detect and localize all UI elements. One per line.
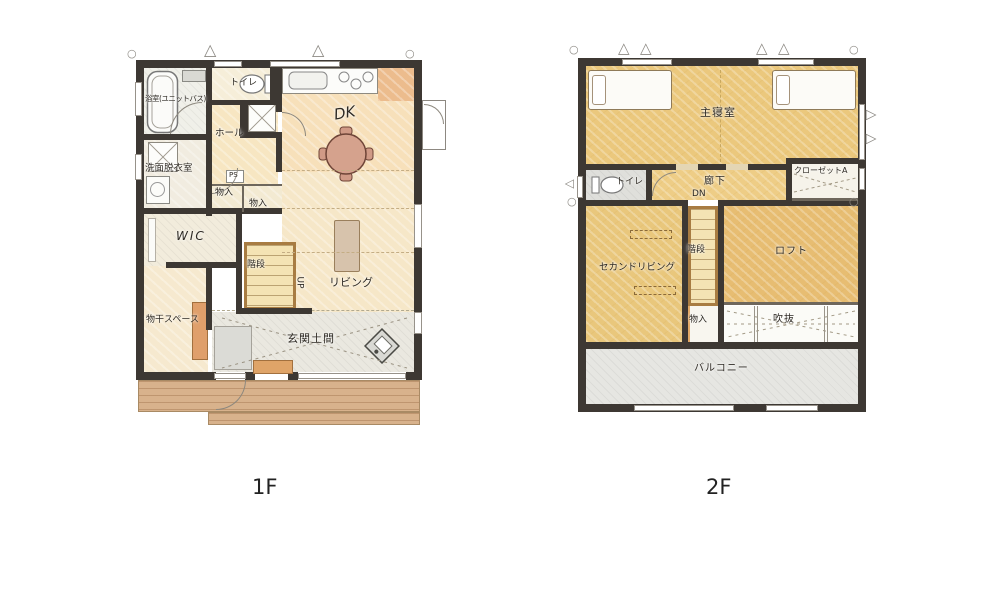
corner-mark-icon: ○ xyxy=(569,44,579,55)
floor-plan-sheet: △ △ ○ ○ 浴室(ユニットバス) トイレ ホール DK 洗面脱衣室 PS 物… xyxy=(0,0,1000,600)
room-label-washroom: 洗面脱衣室 xyxy=(145,164,193,174)
corner-mark-icon: ○ xyxy=(127,48,137,59)
room-label-balcony: バルコニー xyxy=(694,364,749,374)
window-mark-icon: △ xyxy=(864,134,878,145)
furniture-outline xyxy=(634,286,676,295)
wall-segment xyxy=(240,132,282,138)
wall-segment xyxy=(136,372,216,380)
room-label-loft: ロフト xyxy=(775,247,808,257)
bath-counter xyxy=(182,70,206,82)
window-mark-icon: △ xyxy=(204,42,216,58)
pillow-right xyxy=(776,75,790,105)
room-label-hall: ホール xyxy=(215,129,244,139)
stairs-dn-label: DN xyxy=(692,190,706,199)
beam-line xyxy=(282,252,414,253)
room-label-closet-a: クローゼットA xyxy=(794,167,847,175)
washroom-sink-bowl xyxy=(150,182,165,197)
genkan-step xyxy=(253,360,293,374)
window xyxy=(414,204,422,248)
room-label-master-bedroom: 主寝室 xyxy=(700,107,736,118)
wall-segment xyxy=(236,308,312,314)
room-label-laundry: 物干スペース xyxy=(146,316,199,325)
window-mark-icon: △ xyxy=(640,41,652,56)
room-label-ps: PS xyxy=(229,172,238,179)
window xyxy=(859,168,865,190)
window xyxy=(270,61,340,67)
window xyxy=(414,312,422,334)
stairs-up-label: UP xyxy=(295,276,304,288)
wall-segment xyxy=(718,206,724,342)
corner-mark-icon: ○ xyxy=(849,196,859,207)
dining-table xyxy=(318,126,374,182)
window xyxy=(622,59,672,65)
void-post xyxy=(824,306,828,342)
wood-deck-lower xyxy=(208,412,420,425)
wall-segment xyxy=(578,58,586,412)
wall-segment xyxy=(586,200,688,206)
kitchen-counter xyxy=(282,68,378,94)
room-label-stairs-1f: 階段 xyxy=(247,261,265,270)
window-mark-icon: △ xyxy=(312,42,324,58)
room-label-toilet: トイレ xyxy=(230,79,257,88)
window xyxy=(214,61,242,67)
pillow-left xyxy=(592,75,606,105)
room-label-corridor: 廊下 xyxy=(704,177,726,187)
window xyxy=(634,405,734,411)
floor-title-1f: 1F xyxy=(252,477,277,498)
void-post xyxy=(754,306,758,342)
corner-mark-icon: ○ xyxy=(849,44,859,55)
beam-line xyxy=(282,170,414,171)
room-label-storage-2f: 物入 xyxy=(689,316,707,325)
door-opening xyxy=(214,373,246,379)
room-label-bathroom: 浴室(ユニットバス) xyxy=(145,95,206,103)
wall-segment xyxy=(586,342,858,349)
room-second-living-2f xyxy=(586,206,684,342)
wall-segment xyxy=(242,186,244,212)
window-mark-icon: △ xyxy=(756,41,768,56)
sliding-opening xyxy=(726,164,748,170)
room-label-wic: WIC xyxy=(176,230,206,242)
room-label-genkan: 玄関土間 xyxy=(287,333,335,344)
wic-shelf xyxy=(148,218,156,262)
floor-title-2f: 2F xyxy=(706,477,731,498)
room-label-toilet-2f: トイレ xyxy=(616,178,643,187)
wall-segment xyxy=(276,134,282,172)
stairs-2f xyxy=(688,206,718,306)
room-kitchen-corner-1f xyxy=(378,68,414,101)
window-mark-icon: △ xyxy=(864,110,878,121)
room-balcony-2f xyxy=(586,348,858,404)
window xyxy=(298,373,406,379)
living-sofa xyxy=(334,220,360,272)
wall-segment xyxy=(786,158,858,164)
wall-segment xyxy=(682,206,688,342)
room-label-living: リビング xyxy=(329,277,373,288)
room-label-storage-b: 物入 xyxy=(249,200,267,209)
window xyxy=(135,82,142,116)
room-label-void: 吹抜 xyxy=(773,315,795,325)
window xyxy=(766,405,818,411)
wall-segment xyxy=(724,302,858,305)
corner-mark-icon: ○ xyxy=(567,196,577,207)
window xyxy=(758,59,814,65)
wall-segment xyxy=(166,262,240,268)
window-mark-icon: △ xyxy=(618,41,630,56)
wall-segment xyxy=(144,134,206,140)
window-mark-icon: △ xyxy=(563,179,575,188)
hall-storage-box xyxy=(248,104,276,132)
corner-mark-icon: ○ xyxy=(405,48,415,59)
room-label-dk: DK xyxy=(333,104,357,122)
wood-deck-upper xyxy=(138,380,420,412)
wall-segment xyxy=(206,268,212,330)
window xyxy=(577,176,583,198)
room-label-second-living: セカンドリビング xyxy=(599,263,675,273)
window-mark-icon: △ xyxy=(778,41,790,56)
window xyxy=(135,154,142,180)
beam-line xyxy=(282,208,414,209)
room-label-storage-a: 物入 xyxy=(215,189,233,198)
room-label-stairs-2f: 階段 xyxy=(687,246,705,255)
furniture-outline xyxy=(630,230,672,239)
wall-segment xyxy=(276,68,282,112)
sliding-opening xyxy=(676,164,698,170)
